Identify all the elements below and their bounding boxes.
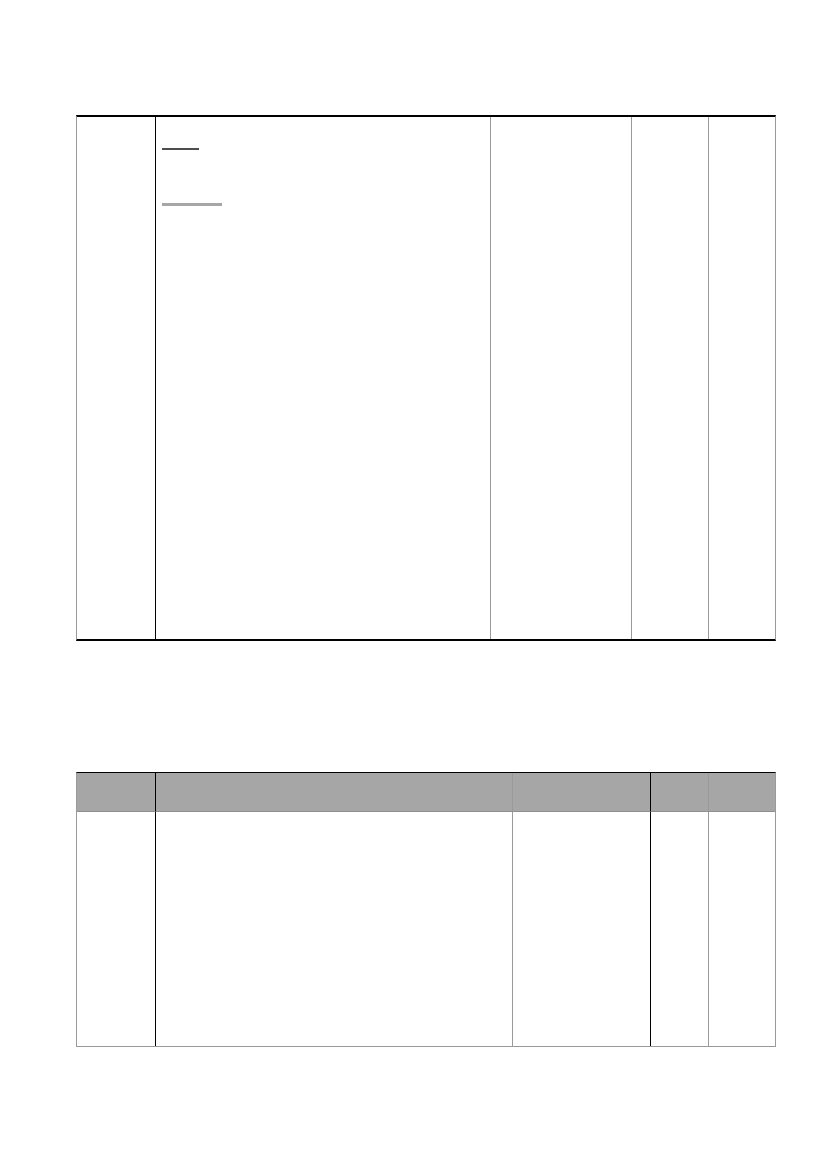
document-page <box>0 0 827 1169</box>
blank-underline-placeholder-light <box>162 203 222 206</box>
upper-table-cell-r1c5 <box>709 117 775 639</box>
upper-table-cell-r1c4 <box>632 117 709 639</box>
lower-table-header-c3 <box>513 773 651 812</box>
lower-table-header-c4 <box>651 773 709 812</box>
upper-table-cell-r1c3 <box>491 117 632 639</box>
lower-table <box>76 772 776 1047</box>
lower-table-cell-r1c5 <box>709 812 775 1046</box>
upper-table-cell-r1c1 <box>77 117 156 639</box>
upper-table-cell-r1c2 <box>156 117 491 639</box>
lower-table-cell-r1c4 <box>651 812 709 1046</box>
blank-underline-placeholder-dark <box>162 148 199 150</box>
lower-table-cell-r1c2 <box>156 812 513 1046</box>
upper-table <box>76 115 776 641</box>
lower-table-header-c5 <box>709 773 775 812</box>
lower-table-header-c2 <box>156 773 513 812</box>
lower-table-cell-r1c3 <box>513 812 651 1046</box>
lower-table-cell-r1c1 <box>77 812 156 1046</box>
lower-table-header-c1 <box>77 773 156 812</box>
